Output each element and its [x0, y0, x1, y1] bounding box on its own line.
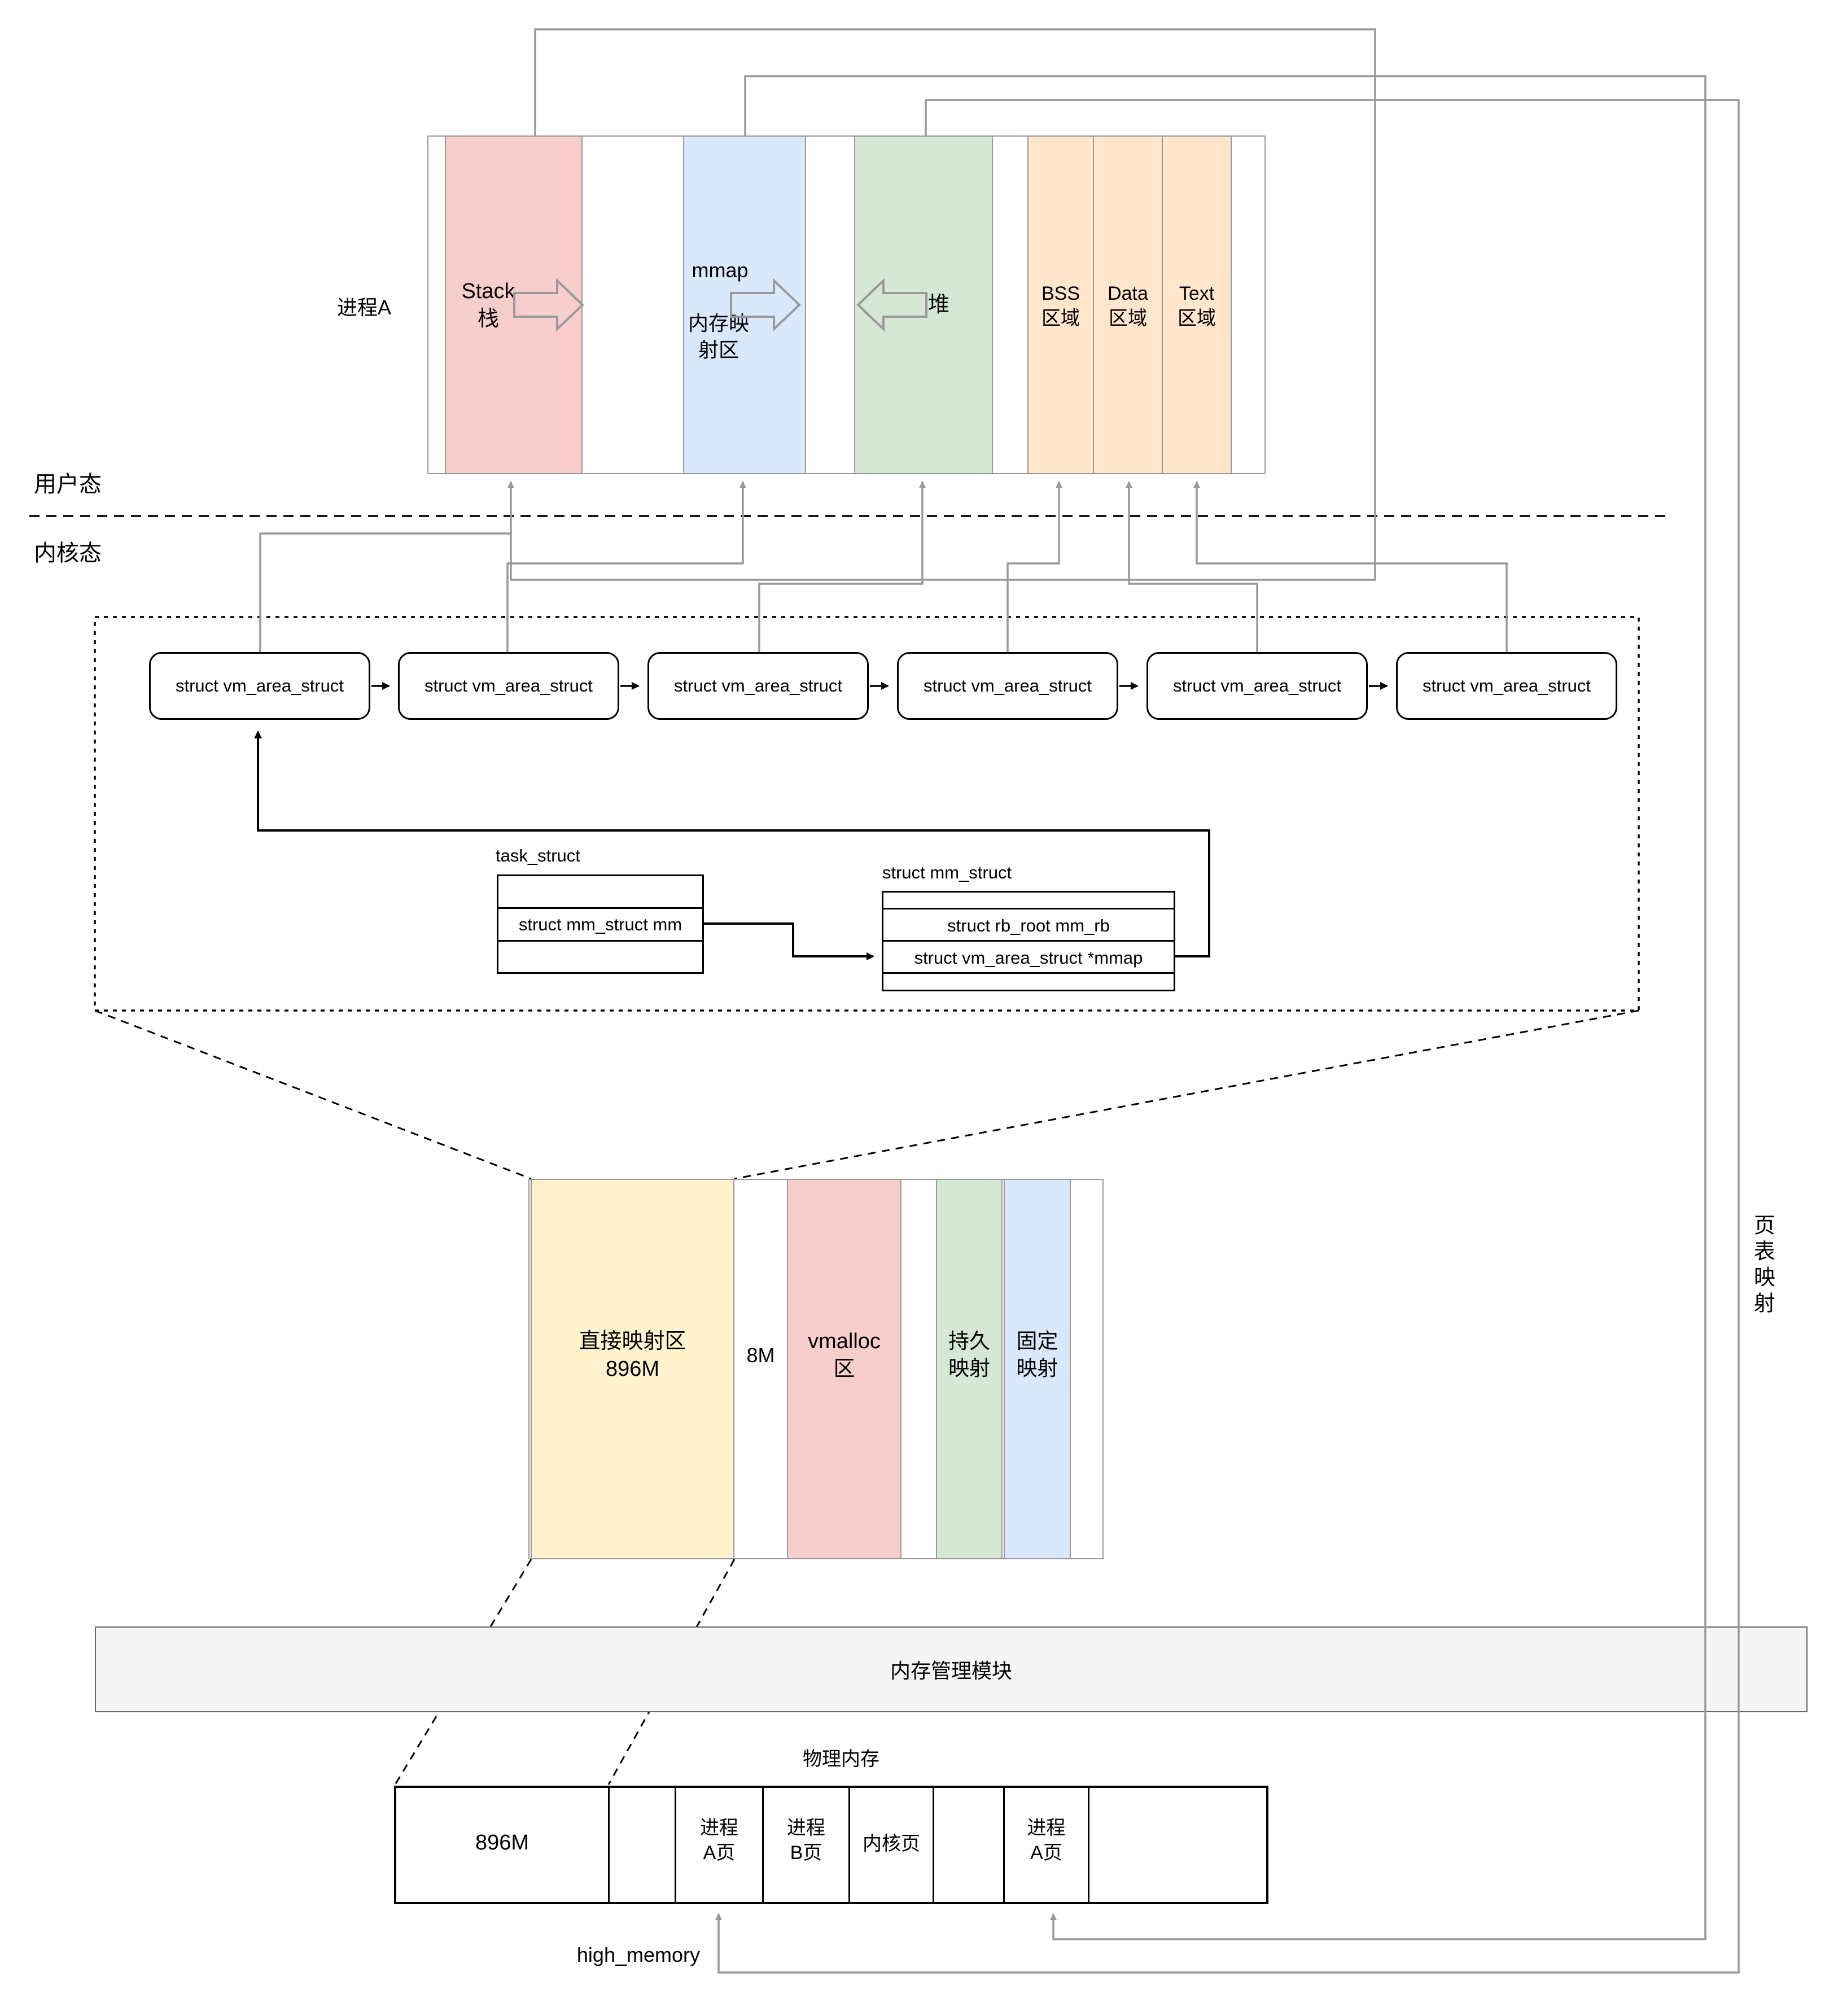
phys-cell-proc-a-2: 进程 A页 [1005, 1816, 1088, 1865]
mm-struct-title: struct mm_struct [882, 861, 1012, 884]
vma-box-4: struct vm_area_struct [897, 652, 1118, 720]
task-struct-field-mm: struct mm_struct mm [498, 913, 703, 936]
funnel-line-left-top [95, 1011, 531, 1179]
linux-memory-diagram: 进程A Stack 栈 mmap 内存映 射区 堆 BSS 区域 Data 区域… [0, 0, 1838, 2016]
task-struct-sep-1 [498, 907, 703, 909]
memory-module-bar: 内存管理模块 [95, 1626, 1808, 1712]
heap-label: 堆 [919, 291, 959, 319]
mm-struct-field-mmap: struct vm_area_struct *mmap [883, 947, 1174, 969]
vma-box-3: struct vm_area_struct [647, 652, 869, 720]
gap-8m-label: 8M [734, 1342, 787, 1369]
persistent-map-label: 持久 映射 [936, 1328, 1003, 1382]
memory-module-label: 内存管理模块 [890, 1655, 1012, 1684]
physical-memory-label: 物理内存 [785, 1747, 898, 1772]
vma-box-2-label: struct vm_area_struct [425, 676, 593, 696]
vma6-to-text-arrow [1197, 482, 1507, 652]
phys-sep-7 [1088, 1788, 1089, 1902]
funnel-line-right-top [734, 1011, 1639, 1179]
task-struct-title: task_struct [496, 845, 580, 867]
fixed-map-label: 固定 映射 [1004, 1328, 1071, 1382]
bss-label: BSS 区域 [1027, 281, 1094, 331]
kernel-mode-label: 内核态 [34, 539, 102, 568]
vma-box-2: struct vm_area_struct [398, 652, 619, 720]
direct-map-label: 直接映射区 896M [531, 1328, 734, 1384]
user-mode-label: 用户态 [34, 470, 102, 499]
vma4-to-bss-arrow [1008, 482, 1059, 652]
phys-sep-1 [608, 1788, 610, 1902]
text-label: Text 区域 [1162, 281, 1232, 331]
mm-struct-sep-1 [883, 908, 1174, 909]
data-label: Data 区域 [1093, 281, 1163, 331]
task-struct-sep-2 [498, 940, 703, 942]
vma2-to-mmap-arrow [507, 482, 743, 652]
task-to-mm-arrow [704, 924, 873, 956]
phys-cell-proc-a-1: 进程 A页 [676, 1816, 762, 1865]
phys-cell-kernel-page: 内核页 [850, 1831, 933, 1856]
vma-box-5: struct vm_area_struct [1146, 652, 1368, 720]
phys-sep-5 [933, 1788, 934, 1902]
vma-box-4-label: struct vm_area_struct [924, 676, 1092, 696]
mmap-label: mmap [685, 257, 755, 284]
phys-cell-896m: 896M [396, 1829, 608, 1857]
mmap-region [683, 135, 806, 474]
mm-struct-sep-3 [883, 972, 1174, 974]
page-table-mapping-label: 页表映射 [1748, 1214, 1775, 1318]
mm-struct-field-rb: struct rb_root mm_rb [883, 915, 1174, 937]
vma-box-6-label: struct vm_area_struct [1423, 676, 1591, 696]
mm-struct-sep-2 [883, 940, 1174, 942]
vma1-to-stack-arrow [260, 482, 511, 652]
vma-box-5-label: struct vm_area_struct [1173, 676, 1341, 696]
vmalloc-label: vmalloc 区 [787, 1328, 902, 1384]
process-a-label: 进程A [316, 295, 412, 321]
vma-box-1-label: struct vm_area_struct [176, 676, 344, 696]
stack-label: Stack 栈 [446, 278, 531, 334]
vma5-to-data-arrow [1129, 482, 1257, 652]
mmap-sub-label: 内存映 射区 [676, 311, 761, 364]
vma3-to-heap-arrow [759, 482, 922, 652]
high-memory-label: high_memory [536, 1942, 700, 1969]
vma-box-6: struct vm_area_struct [1396, 652, 1617, 720]
phys-cell-proc-b: 进程 B页 [764, 1816, 848, 1865]
vma-box-3-label: struct vm_area_struct [674, 676, 842, 696]
vma-box-1: struct vm_area_struct [149, 652, 370, 720]
